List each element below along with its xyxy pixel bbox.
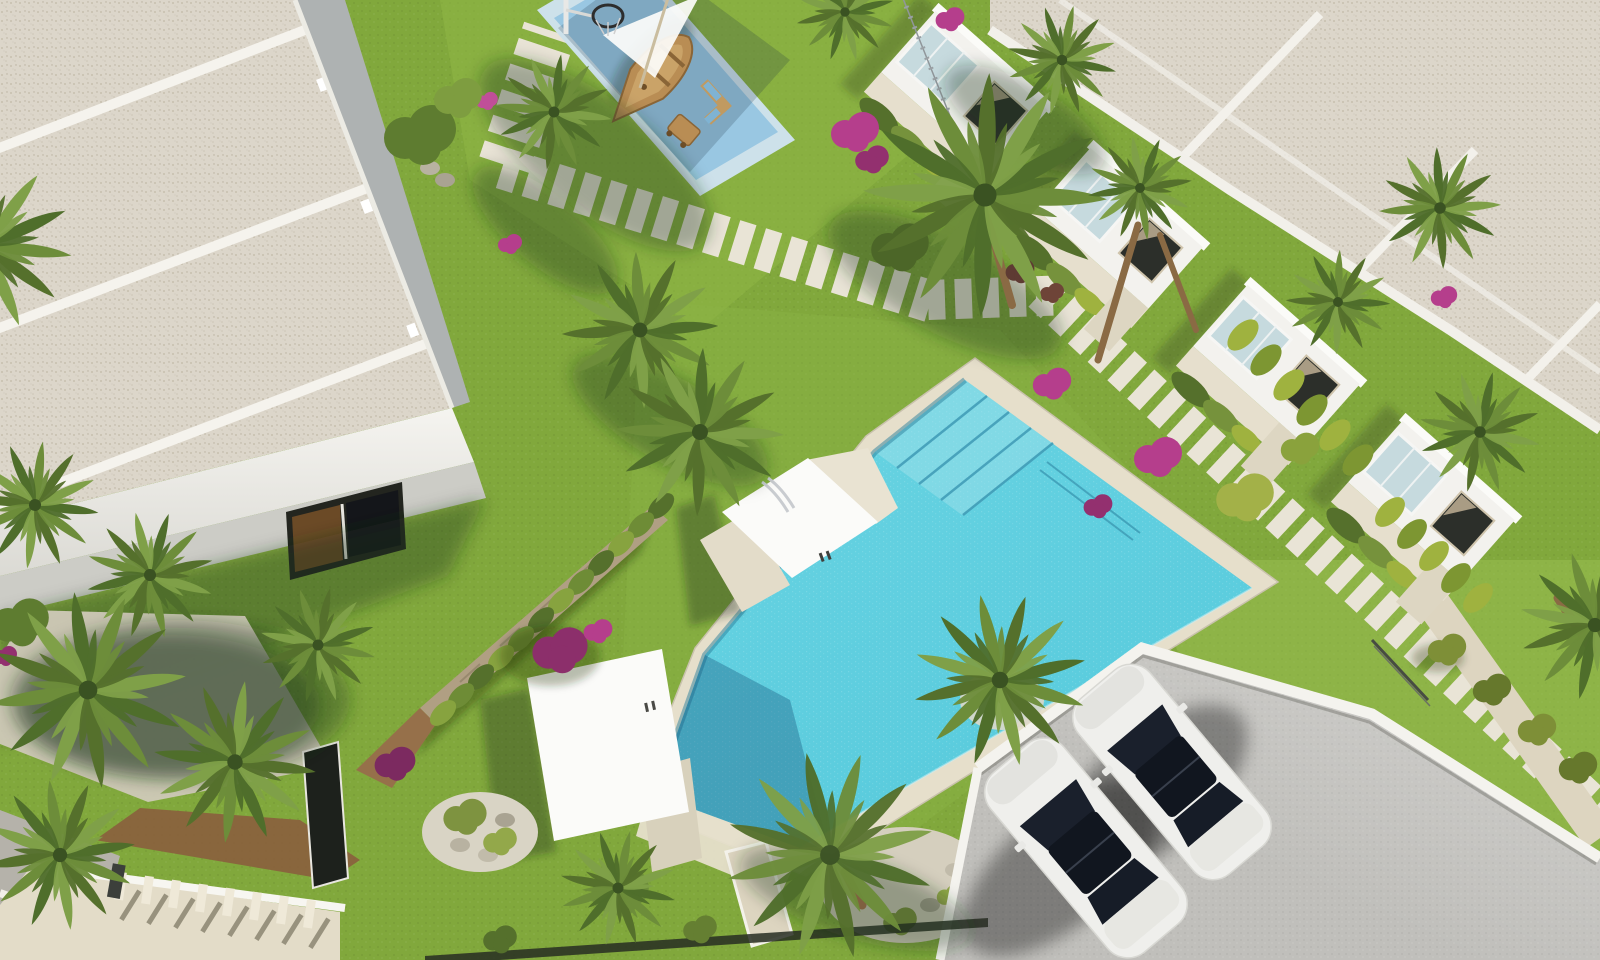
aerial-render — [0, 0, 1600, 960]
scene-canvas — [0, 0, 1600, 960]
